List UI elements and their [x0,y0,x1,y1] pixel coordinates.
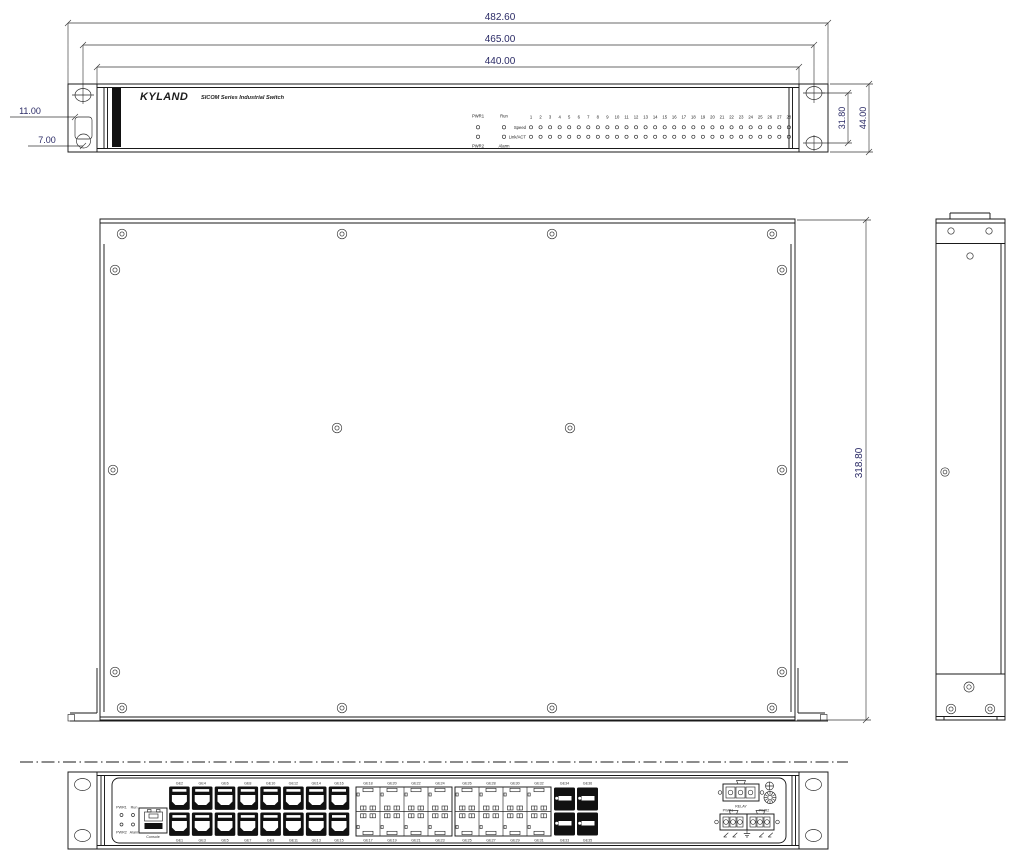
port-label: GE22 [411,781,420,785]
screw-hole [777,265,787,275]
ground-screw-icon [766,782,774,790]
screw-hole [547,229,557,239]
speed-led [558,126,561,129]
linkact-led [644,135,647,138]
led-port-number: 24 [748,115,753,120]
led-port-number: 19 [701,115,706,120]
speed-led [625,126,628,129]
port-label: GE10 [266,781,275,785]
linkact-led [682,135,685,138]
screw-hole [949,707,953,711]
port-label: GE29 [510,839,519,843]
screw-hole [111,468,115,472]
screw-hole [340,706,344,710]
sfp-slot [462,788,472,791]
linkact-led [692,135,695,138]
led-label-pwr1: PWR1 [472,114,485,119]
port-label: GE24 [435,781,444,785]
speed-led [730,126,733,129]
speed-led [692,126,695,129]
port-label: GE2 [176,781,183,785]
port-label: GE23 [435,839,444,843]
screw-hole [113,670,117,674]
linkact-led [768,135,771,138]
speed-led [654,126,657,129]
screw-hole [946,704,956,714]
linkact-led [568,135,571,138]
status-led [132,814,135,817]
led-port-number: 5 [568,115,571,120]
led-port-number: 16 [672,115,677,120]
speed-led [539,126,542,129]
right-ear-hole-top [806,779,822,791]
bail-latch [555,797,558,800]
led-port-number: 27 [777,115,782,120]
speed-led [606,126,609,129]
screw-hole [117,703,127,713]
sfp-slot [534,831,544,834]
terminal-screw [776,820,780,824]
dim-panel-height: 44.00 [858,107,868,130]
sfp-slot [435,788,445,791]
led-port-number: 26 [767,115,772,120]
led-port-number: 6 [578,115,581,120]
led-port-number: 10 [615,115,620,120]
port-label: GE27 [486,839,495,843]
terminal-screw [718,791,722,795]
led-row-linkact: Link/ACT [509,135,527,140]
status-led [120,814,123,817]
status-led [120,823,123,826]
knurl-tick [772,795,775,797]
port-label: GE12 [289,781,298,785]
port-label: GE9 [267,839,274,843]
speed-led [644,126,647,129]
port-label: GE26 [462,781,471,785]
linkact-led [711,135,714,138]
sfp-slot [435,831,445,834]
led-port-number: 2 [539,115,542,120]
sfp-slot [510,788,520,791]
port-label: GE16 [334,781,343,785]
port-label: GE6 [221,781,228,785]
knurl-tick [772,799,775,801]
screw-hole [550,706,554,710]
speed-led [701,126,704,129]
linkact-led [740,135,743,138]
port-label: GE30 [510,781,519,785]
linkact-led [654,135,657,138]
status-run: Run [131,806,138,810]
screw-hole [941,468,949,476]
screw-hole [550,232,554,236]
screw-hole [986,228,992,234]
knurl-tick [771,792,773,795]
port-label: GE28 [486,781,495,785]
screw-hole [113,268,117,272]
sfp-plus-block: GE34GE33GE36GE35 [554,781,598,842]
sfp-slot [510,831,520,834]
knurl-tick [765,799,768,801]
led-port-number: 3 [549,115,552,120]
speed-led [682,126,685,129]
port-label: GE4 [199,781,206,785]
terminal-pin [736,787,745,798]
led-port-number: 4 [558,115,561,120]
speed-led [587,126,590,129]
status-pwr1: PWR1 [116,806,127,810]
rj45-port-block: GE2GE1GE4GE3GE6GE5GE8GE7GE10GE9GE12GE11G… [169,781,349,842]
linkact-led [606,135,609,138]
console-slot [145,823,163,829]
knurl-tick [767,800,769,803]
led-port-number: 17 [681,115,686,120]
led-port-number: 28 [787,115,792,120]
linkact-led [577,135,580,138]
speed-led [634,126,637,129]
terminal-screw [715,820,719,824]
dim-hole-span: 465.00 [485,34,516,45]
sfp-slot [486,831,496,834]
port-label: GE20 [387,781,396,785]
screw-hole [967,253,973,259]
port-label: GE15 [334,839,343,843]
brand-logo: KYLAND [140,91,188,103]
linkact-led [663,135,666,138]
dim-body-width: 440.00 [485,56,516,67]
bail-latch [578,797,581,800]
port-label: GE13 [311,839,320,843]
screw-hole [340,232,344,236]
polarity-mark [759,833,764,837]
linkact-led [634,135,637,138]
status-led [132,823,135,826]
speed-led [568,126,571,129]
knurl-tick [771,800,773,803]
led-port-number: 9 [606,115,609,120]
linkact-led [720,135,723,138]
technical-drawing-page: 482.60 465.00 440.00 11.00 7.00 31.80 44… [0,0,1020,856]
faceplate [112,778,786,843]
sfp-slot [363,788,373,791]
screw-hole [335,426,339,430]
port-label: GE5 [221,839,228,843]
side-view-outline [936,213,1005,720]
pwr2-label: PWR2 [759,809,770,813]
dim-outer-width: 482.60 [485,12,516,23]
linkact-led [587,135,590,138]
port-label: GE11 [289,839,298,843]
screw-hole [943,470,947,474]
sfp-slot [387,831,397,834]
screw-hole [777,465,787,475]
linkact-led [529,135,532,138]
led-port-number: 18 [691,115,696,120]
top-view: 318.80 [68,217,871,723]
power-pin-symbols [724,831,773,838]
dim-ear-hole-spacing: 31.80 [837,107,847,130]
sfp-slot [534,788,544,791]
left-ear-hole-bottom [75,830,91,842]
led-port-number: 1 [530,115,533,120]
sfp-slot [363,831,373,834]
screw-hole [547,703,557,713]
drawing-canvas: 482.60 465.00 440.00 11.00 7.00 31.80 44… [0,0,1020,856]
port-label: GE3 [199,839,206,843]
screw-hole [964,682,974,692]
port-label: GE8 [244,781,251,785]
port-label: GE34 [560,781,569,785]
product-subtitle: SICOM Series Industrial Switch [201,95,285,101]
speed-led [596,126,599,129]
led-port-number: 21 [720,115,725,120]
top-view-outline [70,219,828,721]
sfp-block-1: GE18GE17GE20GE19GE22GE21GE24GE23 [356,781,452,842]
speed-led [673,126,676,129]
console-label: Console [146,835,160,839]
port-label: GE36 [583,781,592,785]
screw-hole [120,706,124,710]
sfp-slot [462,831,472,834]
linkact-led [596,135,599,138]
polarity-mark [768,833,773,837]
status-led [476,135,479,138]
led-port-number: 12 [634,115,639,120]
terminal-pin [746,787,755,798]
linkact-led [730,135,733,138]
screw-hole [568,426,572,430]
linkact-led [778,135,781,138]
bottom-view: PWR1 Run PWR2 Alarm Console GE2GE1GE4GE3… [20,762,848,849]
screw-hole [110,265,120,275]
led-port-number: 25 [758,115,763,120]
led-label-run: Run [500,114,508,119]
screw-hole [337,229,347,239]
status-led [502,126,505,129]
speed-led [615,126,618,129]
front-view: 482.60 465.00 440.00 11.00 7.00 31.80 44… [10,12,873,155]
speed-led [768,126,771,129]
polarity-mark [733,833,738,837]
port-label: GE33 [560,839,569,843]
led-port-number: 11 [624,115,629,120]
status-led [476,126,479,129]
speed-led [720,126,723,129]
screw-hole [780,268,784,272]
speed-led [749,126,752,129]
knurl-tick [765,795,768,797]
led-port-number: 15 [662,115,667,120]
port-label: GE35 [583,839,592,843]
linkact-led [625,135,628,138]
port-label: GE18 [363,781,372,785]
side-view-screw-holes [941,228,995,714]
speed-led [778,126,781,129]
sfp-slot [411,831,421,834]
led-port-number: 7 [587,115,590,120]
terminal-screw [760,791,764,795]
port-label: GE25 [462,839,471,843]
screw-hole [767,703,777,713]
screw-hole [110,667,120,677]
led-row-speed: Speed [514,125,527,130]
bail-latch [555,822,558,825]
right-ear-hole-bottom [806,830,822,842]
speed-led [711,126,714,129]
sfp-slot [411,788,421,791]
led-port-number: 8 [597,115,600,120]
speed-led [529,126,532,129]
screw-hole [988,707,992,711]
screw-hole [767,229,777,239]
left-ear-hole-top [75,779,91,791]
linkact-led [759,135,762,138]
screw-hole [108,465,118,475]
screw-hole [770,706,774,710]
top-view-screw-holes [108,229,787,713]
led-port-number: 23 [739,115,744,120]
pwr1-label: PWR1 [723,809,734,813]
screw-hole [780,468,784,472]
linkact-led [749,135,752,138]
dim-depth: 318.80 [854,447,865,478]
screw-hole [770,232,774,236]
port-label: GE19 [387,839,396,843]
sfp-slot [387,788,397,791]
relay-label: RELAY [735,805,747,809]
speed-led [740,126,743,129]
port-label: GE17 [363,839,372,843]
screw-hole [117,229,127,239]
terminal-pin [726,787,735,798]
left-foot [68,715,75,722]
polarity-mark [724,833,729,837]
screw-hole [780,670,784,674]
status-alarm: Alarm [130,831,140,835]
led-label-alarm: Alarm [499,144,510,149]
speed-led [759,126,762,129]
ground-icon [744,831,750,838]
led-label-pwr2: PWR2 [472,144,485,149]
sfp-block-2: GE26GE25GE28GE27GE30GE29GE32GE31 [455,781,551,842]
dim-ear-cutout-top: 11.00 [19,106,41,116]
side-view [936,213,1005,720]
led-port-number: 14 [653,115,658,120]
port-label: GE1 [176,839,183,843]
speed-led [549,126,552,129]
screw-hole [967,685,971,689]
left-ear-cutout [75,117,92,139]
linkact-led [615,135,618,138]
led-port-number: 20 [710,115,715,120]
console-port [139,808,167,833]
screw-hole [948,228,954,234]
knurl-tick [767,792,769,795]
port-label: GE7 [244,839,251,843]
status-led [502,135,505,138]
led-port-number: 22 [729,115,734,120]
linkact-led [539,135,542,138]
status-pwr2: PWR2 [116,831,127,835]
screw-hole [120,232,124,236]
speed-led [663,126,666,129]
screw-hole [777,667,787,677]
port-label: GE31 [534,839,543,843]
linkact-led [673,135,676,138]
screw-hole [332,423,342,433]
bail-latch [578,822,581,825]
front-black-bar [112,88,121,147]
screw-hole [985,704,995,714]
linkact-led [549,135,552,138]
led-port-number: 13 [643,115,648,120]
linkact-led [558,135,561,138]
knurled-screw-icon [764,792,776,804]
speed-led [577,126,580,129]
linkact-led [701,135,704,138]
dim-ear-cutout-bottom: 7.00 [38,135,56,145]
sfp-slot [486,788,496,791]
port-label: GE21 [411,839,420,843]
screw-hole [337,703,347,713]
port-label: GE14 [311,781,320,785]
screw-hole [565,423,575,433]
port-label: GE32 [534,781,543,785]
